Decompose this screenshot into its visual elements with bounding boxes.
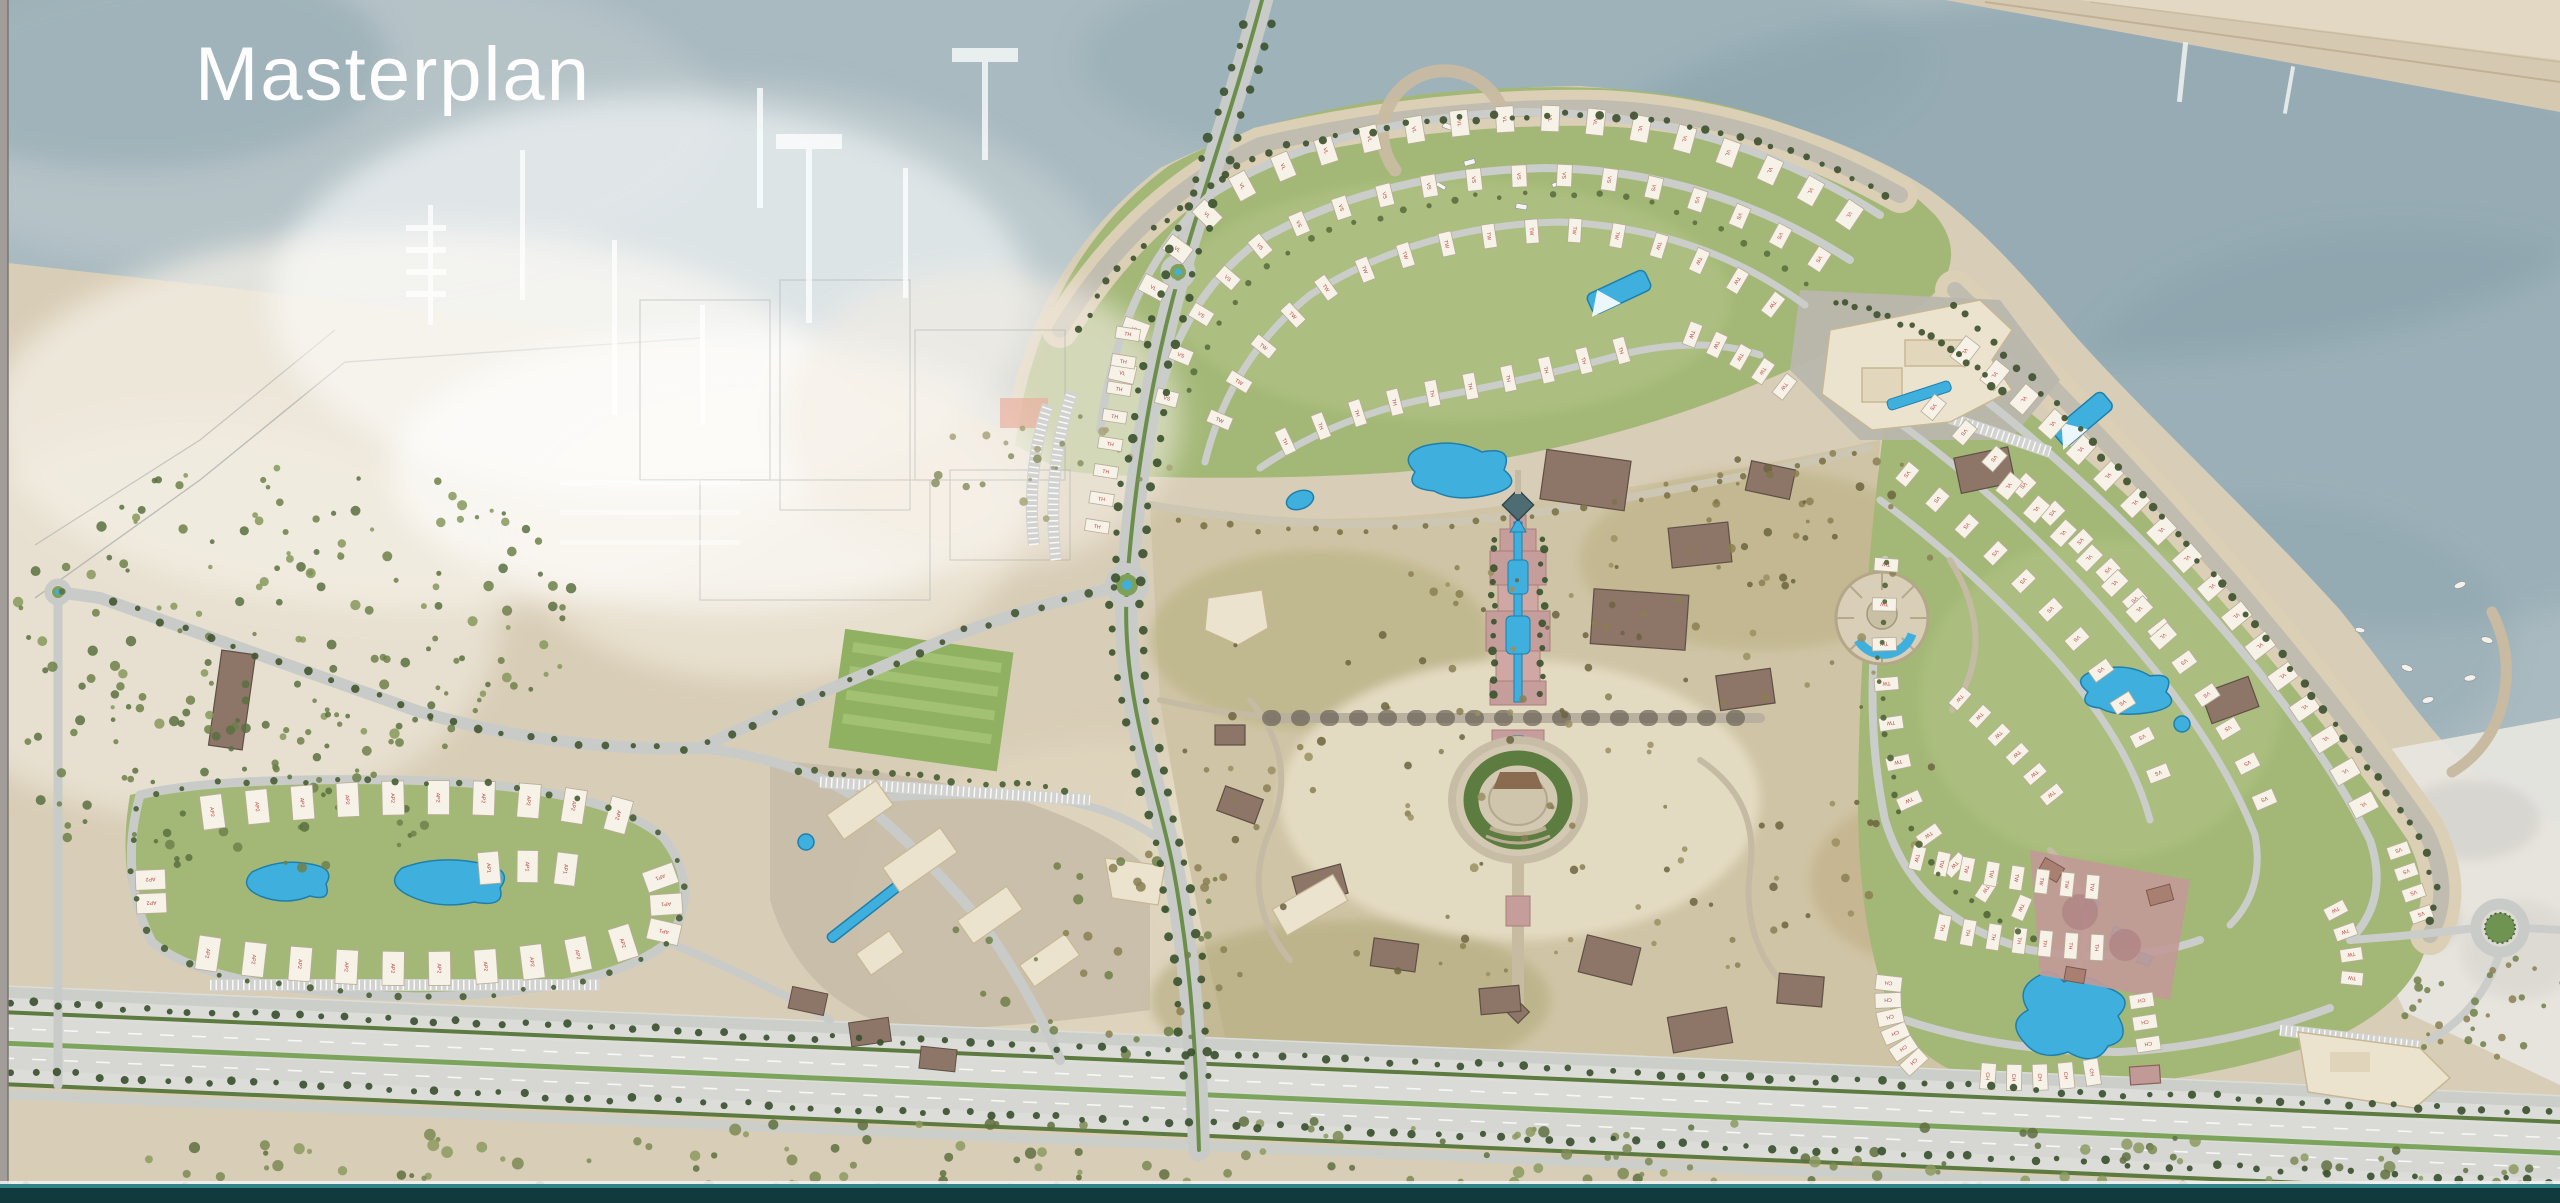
tree — [2175, 531, 2181, 537]
scrub-tree — [457, 500, 467, 510]
scrub-tree — [1059, 441, 1065, 447]
scrub-tree — [2321, 1160, 2332, 1171]
scrub-tree — [2409, 1004, 2416, 1011]
house: TW — [1874, 676, 1899, 691]
tree — [1179, 315, 1187, 323]
scrub-tree — [1848, 910, 1855, 917]
tree — [1754, 137, 1762, 145]
scrub-tree — [1142, 1161, 1152, 1171]
scrub-tree — [1449, 665, 1457, 673]
tree — [1887, 755, 1894, 762]
scrub-tree — [1310, 787, 1316, 793]
tree — [985, 622, 991, 628]
tree — [2213, 1160, 2222, 1169]
tree — [1880, 640, 1885, 645]
scrub-tree — [157, 605, 162, 610]
scrub-tree — [210, 539, 215, 544]
tree — [1157, 860, 1164, 867]
house: VS — [1601, 168, 1619, 192]
house: TW — [2340, 947, 2364, 963]
house: AP1 — [517, 850, 538, 882]
scrub-tree — [1317, 737, 1326, 746]
tree — [1198, 155, 1205, 162]
scrub-tree — [1764, 528, 1773, 537]
scrub-tree — [1053, 862, 1061, 870]
scrub-tree — [118, 669, 127, 678]
tree — [1921, 1080, 1927, 1086]
scrub-tree — [1678, 857, 1684, 863]
tree — [1698, 1072, 1705, 1079]
scrub-tree — [1569, 593, 1574, 598]
scrub-tree — [154, 839, 159, 844]
unit-label: TH — [1115, 386, 1123, 393]
unit-label: TW — [2012, 873, 2019, 882]
scrub-tree — [1454, 565, 1459, 570]
scrub-tree — [2143, 1132, 2149, 1138]
scrub-tree — [1709, 902, 1713, 906]
scrub-tree — [317, 582, 326, 591]
tree — [1130, 745, 1136, 751]
axis-south-path — [1512, 860, 1524, 1006]
tree — [1195, 248, 1202, 255]
tree — [109, 597, 117, 605]
scrub-tree — [1806, 520, 1810, 524]
house-row-w3: AP1AP1AP1 — [477, 850, 578, 886]
house: AP2 — [136, 893, 167, 914]
scrub-tree — [1453, 601, 1459, 607]
scrub-tree — [1692, 622, 1700, 630]
tree — [889, 770, 896, 777]
scrub-tree — [1647, 750, 1652, 755]
scrub-tree — [186, 695, 195, 704]
tree — [1849, 176, 1854, 181]
tree — [2302, 1166, 2308, 1172]
tree — [250, 1078, 257, 1085]
tree — [1232, 1122, 1240, 1130]
scrub-tree — [87, 674, 96, 683]
tree — [1136, 787, 1145, 796]
scrub-tree — [1727, 544, 1736, 553]
tree — [2374, 773, 2382, 781]
scrub-tree — [1145, 851, 1153, 859]
scrub-tree — [284, 861, 288, 865]
house: CH — [2032, 1064, 2048, 1091]
scrub-tree — [2525, 1164, 2534, 1173]
tree — [1185, 202, 1194, 211]
unit-label: VS — [1470, 176, 1477, 184]
tree — [365, 1083, 372, 1090]
scrub-tree — [337, 722, 342, 727]
scrub-tree — [2059, 1172, 2069, 1182]
tree — [542, 1095, 549, 1102]
scrub-tree — [139, 693, 147, 701]
scrub-tree — [1859, 705, 1863, 709]
scrub-tree — [2080, 1144, 2091, 1155]
scrub-tree — [1538, 1126, 1549, 1137]
tree — [2149, 503, 2158, 512]
scrub-tree — [1076, 873, 1083, 880]
tree — [1936, 872, 1941, 877]
unit-label: CH — [2140, 1018, 2149, 1025]
scrub-tree — [183, 1170, 191, 1178]
tree — [427, 713, 433, 719]
tree — [841, 772, 846, 777]
unit-label: TH — [2041, 940, 2048, 948]
tree — [1118, 697, 1125, 704]
tree — [1768, 144, 1774, 150]
tree — [1412, 1058, 1418, 1064]
scrub-tree — [1184, 952, 1191, 959]
tree — [1947, 346, 1955, 354]
scrub-tree — [1194, 864, 1201, 871]
scrub-tree — [228, 746, 234, 752]
house: VL — [1449, 109, 1470, 137]
scrub-tree — [1514, 1132, 1521, 1139]
scrub-tree — [34, 733, 42, 741]
tree — [1173, 1027, 1182, 1036]
scrub-tree — [498, 564, 508, 574]
tree — [681, 883, 688, 890]
scrub-tree — [189, 1142, 200, 1153]
tree — [1701, 1140, 1709, 1148]
scrub-tree — [1228, 712, 1237, 721]
tree — [1457, 1063, 1465, 1071]
scrub-tree — [1133, 1036, 1139, 1042]
scrub-tree — [2501, 1170, 2507, 1176]
tree — [2101, 1155, 2110, 1164]
scrub-tree — [165, 840, 175, 850]
tree — [1875, 655, 1880, 660]
tree — [1539, 645, 1545, 651]
tree — [2236, 1096, 2241, 1101]
tree — [1691, 485, 1698, 492]
scrub-tree — [1759, 823, 1765, 829]
scrub-tree — [1920, 1122, 1931, 1133]
tree — [527, 733, 534, 740]
house: AP2 — [245, 789, 270, 825]
tree — [1192, 176, 1199, 183]
tree — [1550, 191, 1556, 197]
tree — [1185, 294, 1193, 302]
scrub-tree — [280, 733, 287, 740]
scrub-tree — [2439, 981, 2445, 987]
tree — [652, 1023, 660, 1031]
tree — [521, 1089, 529, 1097]
tree — [1185, 1118, 1193, 1126]
tree — [1491, 537, 1497, 543]
scrub-tree — [457, 516, 464, 523]
scrub-tree — [2414, 976, 2422, 984]
scrub-tree — [272, 1160, 283, 1171]
scrub-tree — [397, 843, 402, 848]
tree — [1189, 271, 1196, 278]
tree — [233, 1011, 240, 1018]
unit-label: TH — [1102, 469, 1110, 476]
scrub-tree — [1730, 1120, 1738, 1128]
tree — [1982, 372, 1988, 378]
tree — [1390, 1128, 1398, 1136]
scrub-tree — [383, 655, 391, 663]
scrub-tree — [2519, 994, 2525, 1000]
tree — [1449, 524, 1454, 529]
tree — [1144, 503, 1151, 510]
tree — [1908, 826, 1914, 832]
scrub-tree — [1051, 466, 1055, 470]
tree — [33, 1069, 40, 1076]
scrub-tree — [2418, 999, 2422, 1003]
scrub-tree — [444, 691, 448, 695]
scrub-tree — [1028, 478, 1032, 482]
tree — [1341, 1055, 1349, 1063]
house: TW — [2034, 869, 2050, 894]
scrub-tree — [2290, 1156, 2298, 1164]
scrub-tree — [316, 777, 322, 783]
scrub-tree — [2509, 995, 2517, 1003]
scrub-tree — [1682, 846, 1688, 852]
scrub-tree — [260, 1140, 270, 1150]
scrub-tree — [432, 636, 438, 642]
scrub-tree — [127, 776, 134, 783]
tree — [1367, 1129, 1375, 1137]
tree — [1203, 133, 1213, 143]
tree — [1855, 1077, 1861, 1083]
tree — [2262, 635, 2269, 642]
tree — [1165, 1119, 1173, 1127]
unit-label: AP2 — [389, 963, 395, 973]
scrub-tree — [396, 723, 403, 730]
scrub-tree — [411, 831, 417, 837]
tree — [575, 741, 583, 749]
tree — [580, 979, 586, 985]
tree — [1475, 1059, 1483, 1067]
scrub-tree — [831, 1144, 840, 1153]
tree — [2000, 352, 2007, 359]
tree — [1205, 344, 1211, 350]
tree — [2478, 1175, 2484, 1181]
scrub-tree — [111, 717, 116, 722]
scrub-tree — [113, 739, 118, 744]
scrub-tree — [1114, 947, 1123, 956]
tree — [1109, 626, 1116, 633]
tree — [2099, 1090, 2106, 1097]
tree — [1111, 573, 1120, 582]
scrub-tree — [1852, 1156, 1862, 1166]
tree — [856, 768, 862, 774]
unit-label: AP2 — [434, 793, 440, 803]
tree — [1176, 518, 1181, 523]
tree — [663, 941, 669, 947]
scrub-tree — [1048, 1019, 1053, 1024]
scrub-tree — [2480, 1041, 2486, 1047]
tree — [1536, 589, 1543, 596]
unit-label: TW — [1528, 227, 1535, 236]
tree — [245, 979, 250, 984]
tree — [695, 1029, 702, 1036]
tree — [1782, 265, 1789, 272]
scrub-tree — [476, 1142, 487, 1153]
scrub-tree — [1743, 653, 1751, 661]
unit-label: TW — [2348, 974, 2357, 981]
scrub-tree — [63, 833, 72, 842]
scrub-tree — [329, 665, 337, 673]
tree — [1102, 277, 1109, 284]
tree — [186, 960, 193, 967]
scrub-tree — [1660, 1169, 1668, 1177]
tree — [1723, 1146, 1728, 1151]
scrub-tree — [1759, 580, 1766, 587]
tree — [1891, 792, 1898, 799]
unit-label: VL — [1636, 125, 1643, 132]
tree — [1677, 1073, 1685, 1081]
scrub-tree — [2471, 997, 2479, 1005]
scrub-tree — [306, 568, 316, 578]
tree — [1113, 529, 1119, 535]
scrub-tree — [1605, 693, 1612, 700]
tree — [2159, 514, 2165, 520]
tree — [2228, 593, 2236, 601]
tree — [1186, 884, 1195, 893]
tree — [1187, 388, 1192, 393]
tree — [1552, 508, 1560, 516]
scrub-tree — [70, 729, 78, 737]
scrub-tree — [145, 1155, 153, 1163]
house: TH — [2064, 932, 2079, 959]
scrub-tree — [1253, 824, 1259, 830]
tree — [1963, 1151, 1972, 1160]
scrub-tree — [1854, 800, 1859, 805]
scrub-tree — [296, 562, 306, 572]
unit-label: TH — [1964, 929, 1971, 937]
scrub-tree — [209, 681, 214, 686]
scrub-tree — [1856, 482, 1865, 491]
tree — [1165, 244, 1174, 253]
tree — [1105, 601, 1113, 609]
tree — [1170, 954, 1179, 963]
tree — [1721, 1074, 1729, 1082]
scrub-tree — [1617, 1168, 1629, 1180]
tree — [1819, 458, 1826, 465]
tree — [1177, 205, 1183, 211]
scrub-tree — [57, 801, 62, 806]
tree — [1246, 85, 1254, 93]
scrub-tree — [535, 537, 542, 544]
scrub-tree — [205, 659, 212, 666]
tree — [1436, 1131, 1442, 1137]
tree — [2348, 1168, 2354, 1174]
scrub-tree — [2506, 962, 2512, 968]
house: CH — [1875, 992, 1902, 1008]
scrub-tree — [1030, 1025, 1038, 1033]
scrub-tree — [711, 1152, 717, 1158]
tree — [2301, 679, 2309, 687]
scrub-tree — [175, 481, 183, 489]
house: VS — [1511, 165, 1527, 188]
tree — [1842, 299, 1848, 305]
tree — [1852, 451, 1857, 456]
tree — [1649, 200, 1654, 205]
tree — [855, 1108, 861, 1114]
tree — [1648, 117, 1654, 123]
scrub-tree — [151, 780, 156, 785]
tree — [2392, 1171, 2399, 1178]
tree — [872, 769, 879, 776]
tree — [1033, 1112, 1040, 1119]
tree — [394, 993, 401, 1000]
tree — [1500, 515, 1506, 521]
scrub-tree — [1717, 472, 1723, 478]
scrub-tree — [362, 746, 372, 756]
tree — [317, 1082, 325, 1090]
scrub-tree — [276, 599, 283, 606]
scrub-tree — [1801, 1153, 1811, 1163]
scrub-tree — [1419, 657, 1426, 664]
tree — [1260, 43, 1268, 51]
unit-label: AP2 — [389, 793, 395, 803]
tree — [2054, 400, 2060, 406]
tree — [1277, 1121, 1284, 1128]
scrub-tree — [420, 821, 429, 830]
tree — [1249, 156, 1255, 162]
scrub-tree — [1805, 913, 1810, 918]
scrub-tree — [1204, 767, 1210, 773]
scrub-tree — [2189, 1135, 2200, 1146]
scrub-tree — [356, 476, 360, 480]
tree — [1171, 340, 1180, 349]
scrub-tree — [313, 753, 321, 761]
tree — [1165, 1047, 1170, 1052]
scrub-tree — [633, 1137, 641, 1145]
house: TH — [2038, 930, 2054, 957]
tree — [2414, 1105, 2422, 1113]
tree — [1928, 859, 1935, 866]
scrub-tree — [1105, 1030, 1112, 1037]
unit-label: VS — [1515, 173, 1521, 181]
tree — [1519, 1061, 1528, 1070]
scrub-tree — [453, 658, 459, 664]
scrub-tree — [2498, 1034, 2506, 1042]
tree — [1540, 537, 1546, 543]
tree — [296, 1011, 304, 1019]
tree — [1544, 1065, 1550, 1071]
tree — [1896, 809, 1901, 814]
stage — [1493, 772, 1543, 789]
scrub-tree — [370, 772, 377, 779]
scrub-tree — [152, 478, 158, 484]
scrub-tree — [286, 555, 294, 563]
tree — [1148, 315, 1155, 322]
scrub-tree — [1806, 497, 1814, 505]
tree — [252, 1009, 258, 1015]
tree — [1151, 225, 1157, 231]
scrub-tree — [1263, 784, 1271, 792]
tree — [1210, 1051, 1219, 1060]
scrub-tree — [1020, 426, 1026, 432]
scrub-tree — [1604, 1154, 1611, 1161]
tree — [1540, 545, 1548, 553]
unit-label: VS — [1560, 172, 1566, 180]
tree — [1220, 87, 1229, 96]
tree — [2416, 833, 2423, 840]
scrub-tree — [2027, 1128, 2038, 1139]
scrub-tree — [300, 636, 306, 642]
tree — [655, 830, 661, 836]
scrub-tree — [325, 787, 332, 794]
house: AP1 — [477, 851, 501, 885]
tree — [1203, 1002, 1211, 1010]
scrub-tree — [1830, 1163, 1838, 1171]
tree — [638, 957, 643, 962]
scrub-tree — [106, 555, 112, 561]
